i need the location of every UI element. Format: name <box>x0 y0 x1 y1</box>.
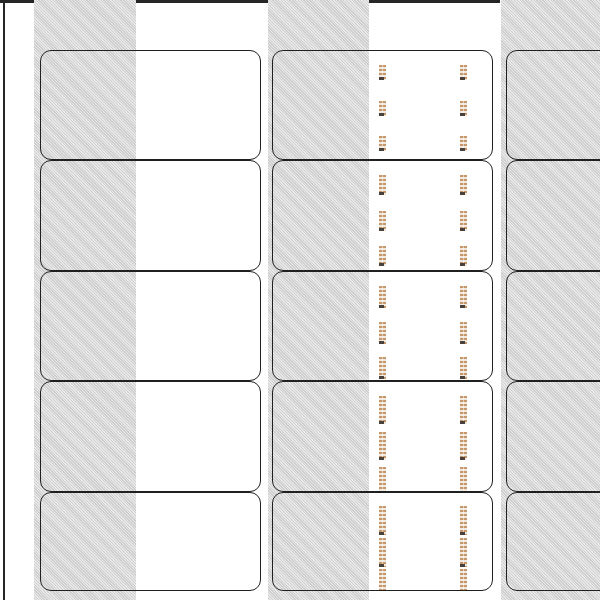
greeked-text-thumbnail-icon <box>379 506 386 535</box>
label-cell[interactable] <box>272 50 493 160</box>
greeked-text-thumbnail-icon <box>379 211 386 231</box>
greeked-text-thumbnail-icon <box>460 211 467 231</box>
greeked-text-thumbnail-icon <box>379 322 386 344</box>
label-cell[interactable] <box>506 381 600 492</box>
label-cell[interactable] <box>506 271 600 381</box>
label-cell[interactable] <box>40 271 261 381</box>
greeked-text-thumbnail-icon <box>460 538 467 567</box>
greeked-text-thumbnail-icon <box>379 432 386 460</box>
greeked-text-thumbnail-icon <box>460 65 467 80</box>
label-cell[interactable] <box>272 271 493 381</box>
greeked-text-thumbnail-icon <box>460 246 467 266</box>
label-sheet-page <box>0 0 600 600</box>
label-cell[interactable] <box>40 160 261 271</box>
greeked-text-thumbnail-icon <box>460 136 467 151</box>
label-cell[interactable] <box>40 381 261 492</box>
greeked-text-thumbnail-icon <box>379 136 386 151</box>
page-left-edge-line <box>3 0 5 600</box>
greeked-text-thumbnail-icon <box>460 175 467 195</box>
label-cell[interactable] <box>506 50 600 160</box>
greeked-text-thumbnail-icon <box>379 357 386 379</box>
greeked-text-thumbnail-icon <box>460 322 467 344</box>
greeked-text-thumbnail-icon <box>460 396 467 424</box>
label-cell[interactable] <box>506 160 600 271</box>
label-cell[interactable] <box>506 492 600 591</box>
greeked-text-thumbnail-icon <box>379 467 386 492</box>
greeked-text-thumbnail-icon <box>379 246 386 266</box>
label-cell[interactable] <box>272 492 493 591</box>
greeked-text-thumbnail-icon <box>379 569 386 591</box>
greeked-text-thumbnail-icon <box>379 286 386 308</box>
greeked-text-thumbnail-icon <box>379 396 386 424</box>
greeked-text-thumbnail-icon <box>379 101 386 116</box>
greeked-text-thumbnail-icon <box>460 467 467 492</box>
greeked-text-thumbnail-icon <box>460 286 467 308</box>
greeked-text-thumbnail-icon <box>379 538 386 567</box>
label-cell[interactable] <box>40 492 261 591</box>
greeked-text-thumbnail-icon <box>460 357 467 379</box>
label-cell[interactable] <box>272 160 493 271</box>
greeked-text-thumbnail-icon <box>379 175 386 195</box>
greeked-text-thumbnail-icon <box>379 65 386 80</box>
greeked-text-thumbnail-icon <box>460 101 467 116</box>
label-cell[interactable] <box>272 381 493 492</box>
label-cell[interactable] <box>40 50 261 160</box>
greeked-text-thumbnail-icon <box>460 432 467 460</box>
greeked-text-thumbnail-icon <box>460 506 467 535</box>
greeked-text-thumbnail-icon <box>460 569 467 591</box>
